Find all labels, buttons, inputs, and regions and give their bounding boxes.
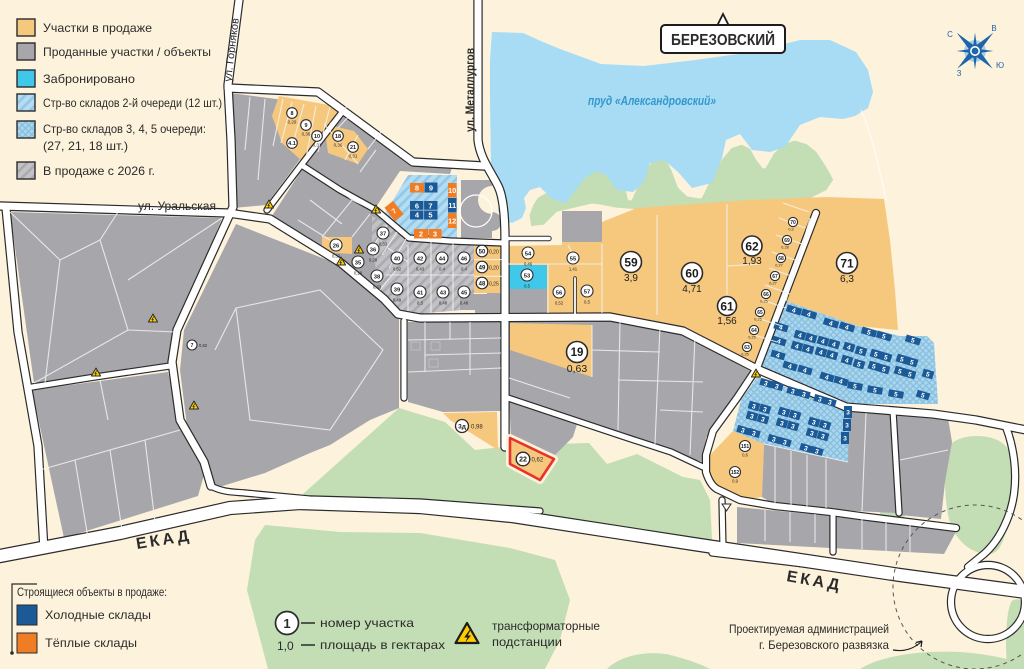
svg-text:пруд «Александровский»: пруд «Александровский» — [588, 94, 716, 108]
svg-text:40: 40 — [394, 256, 400, 262]
svg-text:0,25: 0,25 — [489, 281, 499, 287]
svg-text:50: 50 — [479, 249, 486, 255]
svg-text:0,52: 0,52 — [555, 301, 564, 306]
svg-text:Ю: Ю — [996, 61, 1004, 70]
svg-text:9: 9 — [304, 123, 307, 129]
svg-text:49: 49 — [479, 265, 486, 271]
svg-text:З: З — [957, 69, 962, 78]
svg-text:46: 46 — [461, 256, 468, 262]
svg-text:53: 53 — [524, 273, 531, 279]
svg-text:Проданные участки / объекты: Проданные участки / объекты — [43, 45, 211, 59]
svg-text:0,27: 0,27 — [769, 282, 776, 286]
svg-text:3: 3 — [845, 423, 849, 430]
svg-text:0,27: 0,27 — [775, 264, 782, 268]
svg-text:0,6: 0,6 — [742, 453, 748, 458]
svg-text:0,46: 0,46 — [524, 262, 533, 267]
svg-text:0,5: 0,5 — [524, 284, 531, 289]
svg-text:0,31: 0,31 — [313, 143, 322, 148]
svg-text:62: 62 — [745, 239, 759, 253]
svg-text:48: 48 — [479, 281, 486, 287]
svg-text:152: 152 — [731, 470, 740, 476]
svg-text:0,25: 0,25 — [748, 336, 755, 340]
svg-text:59: 59 — [624, 255, 638, 269]
svg-text:7: 7 — [428, 202, 432, 211]
svg-text:Забронировано: Забронировано — [43, 72, 135, 86]
svg-text:3д: 3д — [458, 424, 466, 431]
svg-text:0,63: 0,63 — [567, 363, 588, 375]
svg-text:0,43: 0,43 — [416, 267, 425, 272]
svg-text:0,4: 0,4 — [439, 267, 446, 272]
svg-text:площадь в гектарах: площадь в гектарах — [320, 638, 445, 652]
svg-text:0,25: 0,25 — [760, 300, 767, 304]
svg-text:61: 61 — [720, 299, 734, 313]
svg-text:подстанции: подстанции — [492, 635, 562, 649]
svg-text:С: С — [947, 30, 953, 39]
svg-text:ул. Металлургов: ул. Металлургов — [465, 48, 477, 132]
svg-text:3: 3 — [846, 410, 850, 417]
svg-text:18: 18 — [335, 134, 341, 140]
svg-text:Участки в продаже: Участки в продаже — [43, 21, 152, 35]
svg-text:2: 2 — [419, 230, 423, 239]
svg-text:45: 45 — [461, 290, 468, 296]
svg-text:19: 19 — [571, 347, 584, 359]
svg-text:0,49: 0,49 — [393, 298, 402, 303]
svg-text:г. Березовского развязка: г. Березовского развязка — [759, 638, 889, 652]
svg-text:9: 9 — [429, 184, 433, 193]
svg-text:56: 56 — [556, 290, 563, 296]
svg-text:57: 57 — [584, 289, 590, 295]
svg-text:7: 7 — [191, 343, 194, 349]
svg-text:БЕРЕЗОВСКИЙ: БЕРЕЗОВСКИЙ — [671, 30, 775, 49]
svg-text:Проектируемая администрацией: Проектируемая администрацией — [729, 622, 889, 636]
svg-text:12: 12 — [448, 217, 456, 226]
svg-text:41: 41 — [417, 290, 424, 296]
svg-text:(27, 21, 18 шт.): (27, 21, 18 шт.) — [43, 139, 128, 153]
svg-text:151: 151 — [741, 444, 750, 450]
svg-text:0,31: 0,31 — [349, 154, 358, 159]
svg-text:6,3: 6,3 — [840, 274, 854, 285]
svg-text:64: 64 — [751, 328, 757, 334]
svg-text:54: 54 — [525, 251, 532, 257]
svg-text:трансформаторные: трансформаторные — [492, 619, 600, 633]
svg-text:43: 43 — [440, 290, 447, 296]
svg-text:60: 60 — [685, 266, 699, 280]
svg-text:0,25: 0,25 — [754, 318, 761, 322]
svg-text:Стр-во складов 2-й очереди (12: Стр-во складов 2-й очереди (12 шт.) — [43, 96, 222, 110]
svg-text:65: 65 — [757, 310, 763, 316]
svg-text:0,29: 0,29 — [354, 271, 363, 276]
svg-text:63: 63 — [744, 345, 750, 351]
svg-text:0,32: 0,32 — [332, 254, 341, 259]
svg-text:3,9: 3,9 — [624, 273, 638, 284]
svg-text:26: 26 — [333, 243, 340, 249]
svg-text:4,71: 4,71 — [682, 284, 702, 295]
svg-text:22: 22 — [519, 457, 527, 464]
svg-text:55: 55 — [570, 256, 577, 262]
svg-text:номер участка: номер участка — [320, 616, 414, 630]
svg-text:69: 69 — [784, 238, 790, 244]
svg-text:0,3: 0,3 — [788, 228, 793, 232]
svg-text:0,5: 0,5 — [584, 300, 591, 305]
svg-text:3: 3 — [843, 436, 847, 443]
svg-text:0,28: 0,28 — [781, 246, 788, 250]
svg-text:68: 68 — [778, 256, 784, 262]
svg-text:0,20: 0,20 — [489, 249, 499, 255]
svg-text:1: 1 — [283, 616, 290, 631]
svg-text:35: 35 — [355, 260, 362, 266]
svg-text:0,25: 0,25 — [741, 353, 748, 357]
svg-text:70: 70 — [790, 220, 796, 226]
svg-text:0,33: 0,33 — [373, 285, 382, 290]
svg-text:0,36: 0,36 — [334, 143, 343, 148]
svg-text:8: 8 — [290, 111, 293, 117]
svg-text:21: 21 — [350, 145, 356, 151]
svg-text:ул. Уральская: ул. Уральская — [138, 201, 216, 213]
svg-text:Тёплые склады: Тёплые склады — [45, 636, 137, 650]
svg-text:66: 66 — [763, 292, 769, 298]
svg-text:5: 5 — [428, 211, 432, 220]
svg-text:11: 11 — [448, 201, 456, 210]
svg-text:0,5: 0,5 — [417, 301, 424, 306]
svg-text:1,41: 1,41 — [569, 267, 578, 272]
svg-text:1,56: 1,56 — [717, 316, 737, 327]
svg-text:6: 6 — [415, 202, 419, 211]
svg-text:0,98: 0,98 — [471, 425, 483, 431]
svg-text:0,29: 0,29 — [288, 120, 297, 125]
svg-text:39: 39 — [394, 287, 401, 293]
svg-text:10: 10 — [314, 134, 320, 140]
svg-text:3: 3 — [433, 230, 437, 239]
svg-text:42: 42 — [417, 256, 423, 262]
svg-text:Холодные склады: Холодные склады — [45, 608, 151, 622]
svg-text:71: 71 — [840, 256, 854, 270]
svg-text:38: 38 — [374, 274, 381, 280]
svg-text:0,33: 0,33 — [379, 242, 388, 247]
svg-text:10: 10 — [448, 186, 456, 195]
svg-text:0,9: 0,9 — [732, 479, 738, 484]
svg-text:1,0: 1,0 — [277, 639, 294, 653]
svg-text:0,82: 0,82 — [199, 343, 208, 348]
svg-text:44: 44 — [439, 256, 446, 262]
svg-text:0,62: 0,62 — [532, 458, 544, 464]
svg-text:0,48: 0,48 — [439, 301, 448, 306]
svg-text:1,93: 1,93 — [742, 256, 762, 267]
svg-text:4.1: 4.1 — [288, 141, 296, 147]
svg-text:37: 37 — [380, 231, 386, 237]
svg-text:36: 36 — [370, 247, 377, 253]
svg-text:8: 8 — [415, 184, 419, 193]
svg-text:0,4: 0,4 — [461, 267, 468, 272]
svg-text:В продаже с 2026 г.: В продаже с 2026 г. — [43, 164, 155, 178]
svg-text:0,28: 0,28 — [369, 258, 378, 263]
svg-text:Стр-во складов 3, 4, 5 очереди: Стр-во складов 3, 4, 5 очереди: — [43, 122, 206, 136]
svg-text:0,48: 0,48 — [460, 301, 469, 306]
svg-text:0,36: 0,36 — [302, 132, 311, 137]
svg-text:Строящиеся объекты в продаже:: Строящиеся объекты в продаже: — [17, 585, 167, 599]
svg-text:0,20: 0,20 — [489, 265, 499, 271]
svg-text:67: 67 — [772, 274, 778, 280]
svg-text:0,52: 0,52 — [393, 267, 402, 272]
svg-text:В: В — [991, 24, 996, 33]
